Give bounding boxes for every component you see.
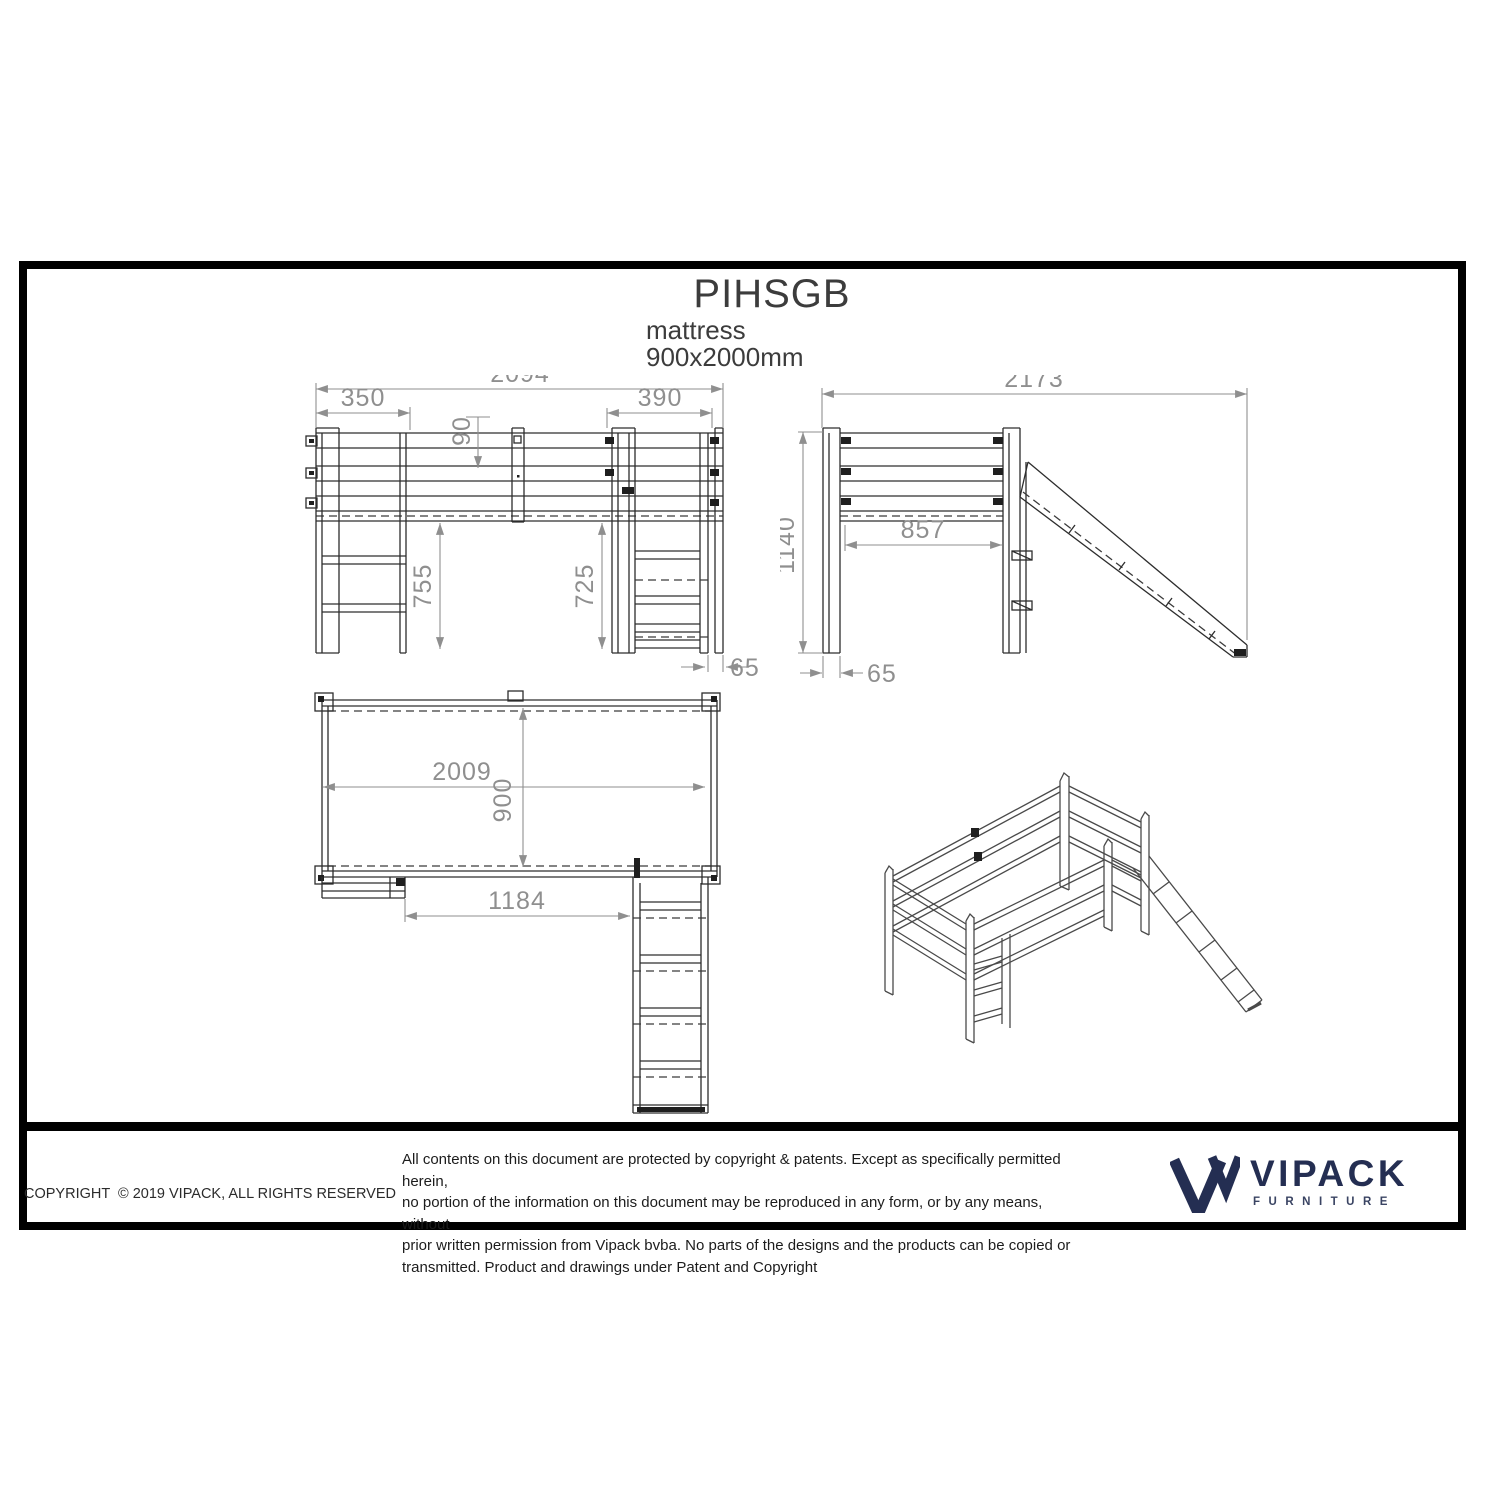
front-elevation-view: 2094 350 390 90 755 725 65 [300,375,760,680]
dim-front-clearance-right: 725 [571,564,599,609]
dim-front-right-section: 390 [638,384,683,412]
legal-paragraph: All contents on this document are protec… [402,1149,1082,1278]
dim-side-overall-depth: 2173 [1004,375,1064,393]
dim-side-post-width: 65 [867,660,897,687]
mattress-size: 900x2000mm [646,344,804,371]
brand-tagline: FURNITURE [1253,1196,1396,1208]
copyright-text: COPYRIGHT © 2019 VIPACK, ALL RIGHTS RESE… [24,1186,396,1202]
isometric-view [870,760,1340,1095]
dim-plan-inner-length: 2009 [432,758,492,786]
dim-front-clearance-left: 755 [409,564,437,609]
side-elevation-view: 2173 1140 857 65 [780,375,1270,687]
plan-dimensions: 2009 900 1184 [323,708,705,922]
dim-plan-ladder-offset: 1184 [488,887,546,915]
side-dimensions: 2173 1140 857 65 [780,375,1247,687]
legal-line: All contents on this document are protec… [402,1149,1082,1192]
dim-front-post-width: 65 [730,654,760,680]
dim-side-overall-height: 1140 [780,516,800,574]
legal-line: prior written permission from Vipack bvb… [402,1235,1082,1257]
page: PIHSGB mattress 900x2000mm [0,0,1500,1500]
iso-drawing [885,773,1262,1043]
plan-view: 2009 900 1184 [300,685,760,1120]
dim-side-inner-width: 857 [901,516,946,544]
dim-front-overall-width: 2094 [490,375,550,388]
dim-front-rail-height: 90 [448,416,476,446]
legal-line: no portion of the information on this do… [402,1192,1082,1235]
front-dimensions: 2094 350 390 90 755 725 65 [316,375,760,680]
brand-name: VIPACK [1250,1153,1408,1195]
front-drawing [306,428,723,653]
dim-plan-inner-width: 900 [489,778,517,823]
legal-line: transmitted. Product and drawings under … [402,1257,1082,1279]
mattress-label: mattress [646,317,804,344]
dim-front-left-section: 350 [341,384,386,412]
product-code: PIHSGB [642,272,902,317]
side-drawing [823,428,1247,657]
vipack-logo-icon [1170,1155,1240,1213]
mattress-info: mattress 900x2000mm [646,317,804,371]
